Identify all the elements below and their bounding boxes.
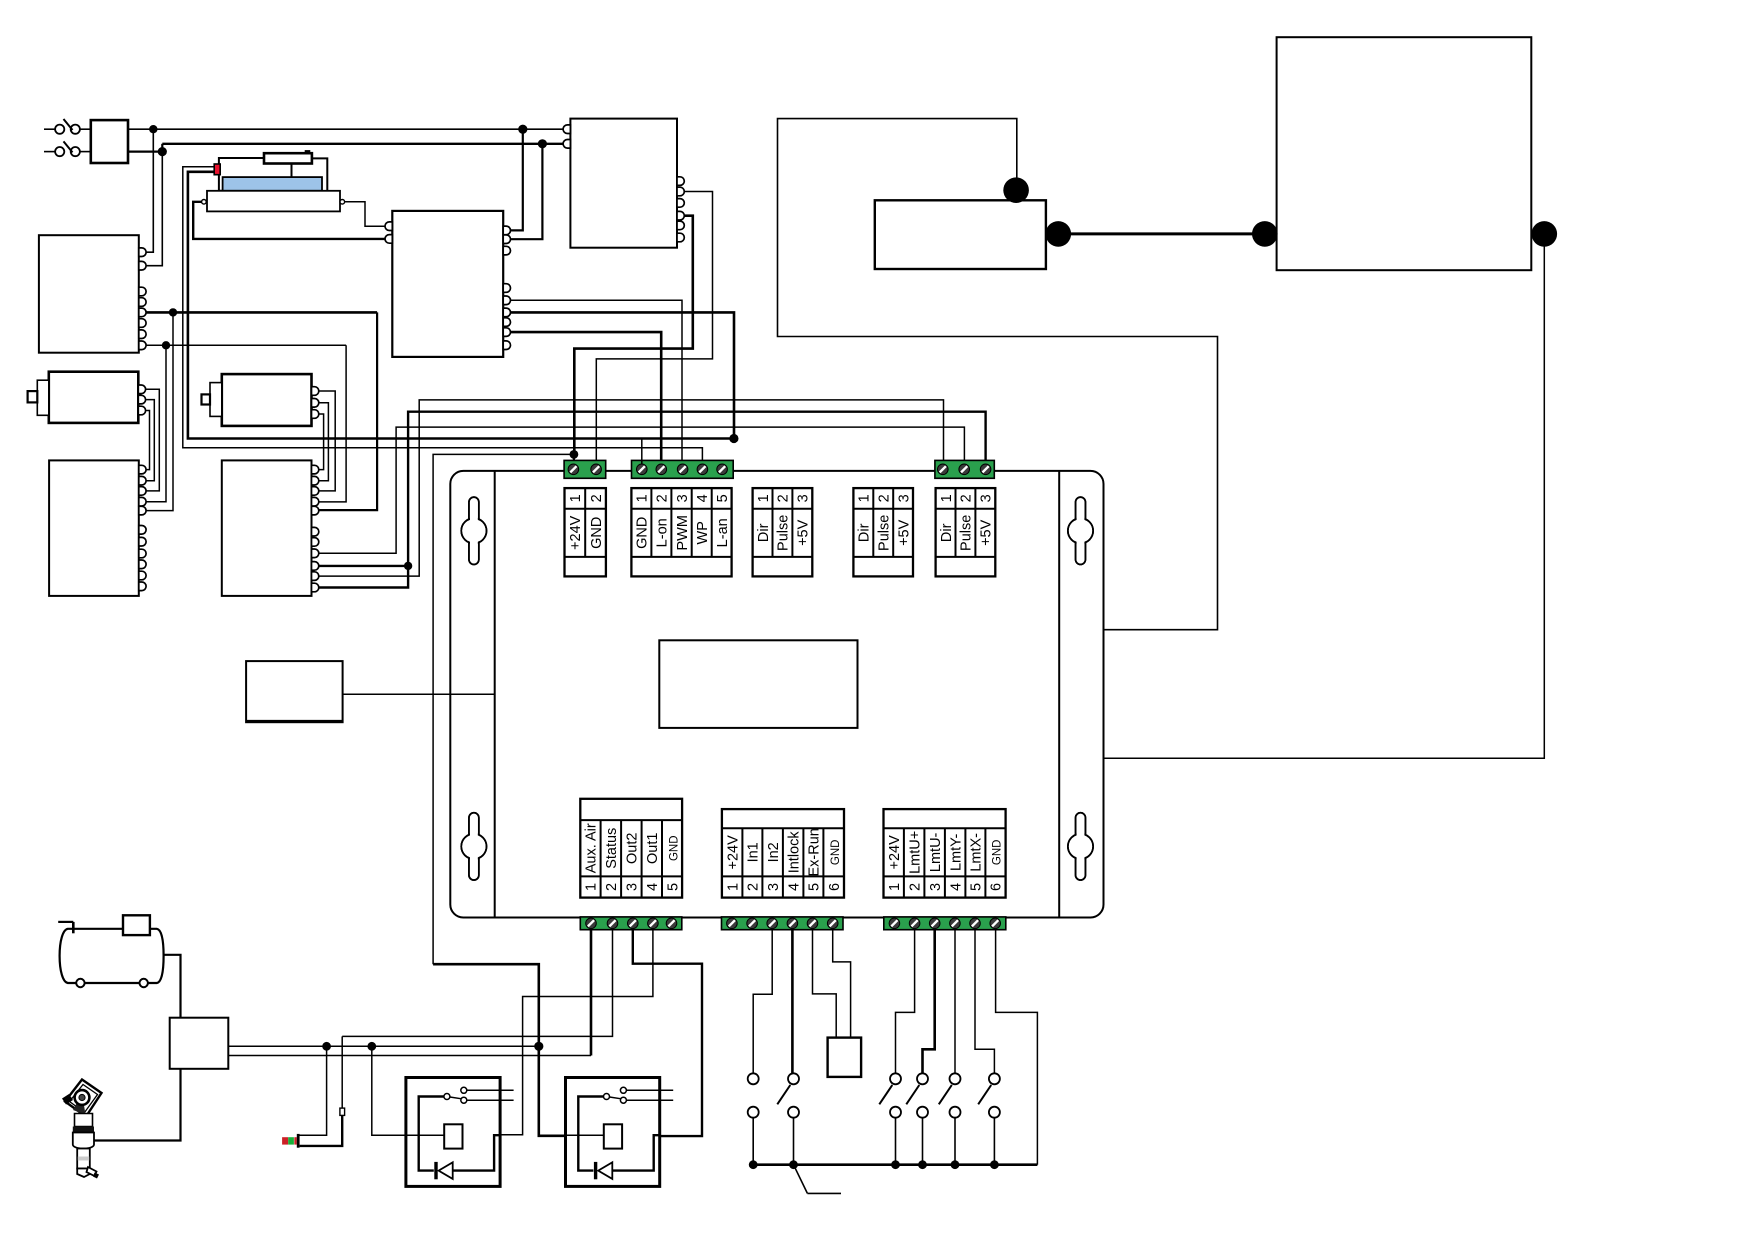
svg-text:3: 3 [675,494,691,502]
svg-text:GND: GND [635,517,651,549]
svg-text:4: 4 [786,883,802,891]
svg-text:GND: GND [668,835,680,861]
svg-text:GND: GND [992,840,1004,866]
svg-text:Dir: Dir [756,523,772,542]
svg-text:Pulse: Pulse [776,515,792,551]
svg-text:4: 4 [695,494,711,502]
svg-text:In1: In1 [746,842,762,862]
svg-text:5: 5 [715,494,731,502]
svg-text:6: 6 [827,883,843,891]
svg-text:2: 2 [589,494,605,502]
svg-text:+5V: +5V [796,519,812,546]
svg-text:6: 6 [989,883,1005,891]
svg-text:2: 2 [907,883,923,891]
svg-text:LmtX-: LmtX- [969,833,985,872]
svg-text:Pulse: Pulse [959,515,975,551]
svg-text:+24V: +24V [568,515,584,550]
svg-text:Pulse: Pulse [876,515,892,551]
svg-text:3: 3 [979,494,995,502]
svg-text:1: 1 [584,883,600,891]
svg-text:1: 1 [725,883,741,891]
svg-text:LmtU+: LmtU+ [907,831,923,874]
svg-text:PWM: PWM [675,515,691,550]
svg-text:WP: WP [695,521,711,544]
svg-text:5: 5 [807,883,823,891]
svg-text:GND: GND [830,840,842,866]
svg-text:L-an: L-an [715,518,731,547]
svg-text:1: 1 [635,494,651,502]
svg-text:Out1: Out1 [645,833,661,864]
svg-text:2: 2 [959,494,975,502]
svg-text:1: 1 [887,883,903,891]
svg-text:LmtY-: LmtY- [948,834,964,872]
svg-text:3: 3 [896,494,912,502]
svg-text:Dir: Dir [939,523,955,542]
svg-text:Aux. Air: Aux. Air [584,823,600,873]
svg-text:4: 4 [948,883,964,891]
svg-text:2: 2 [746,883,762,891]
svg-text:2: 2 [776,494,792,502]
svg-text:1: 1 [756,494,772,502]
svg-text:LmtU-: LmtU- [928,832,944,872]
svg-text:3: 3 [928,883,944,891]
svg-text:Out2: Out2 [625,833,641,864]
svg-text:Dir: Dir [857,523,873,542]
svg-text:3: 3 [796,494,812,502]
svg-text:GND: GND [589,517,605,549]
svg-text:L-on: L-on [655,518,671,547]
svg-text:+5V: +5V [896,519,912,546]
svg-text:Status: Status [604,828,620,869]
svg-text:+24V: +24V [887,835,903,870]
svg-text:2: 2 [876,494,892,502]
svg-text:Intlock: Intlock [786,831,802,874]
svg-text:1: 1 [939,494,955,502]
svg-text:+24V: +24V [725,835,741,870]
svg-text:In2: In2 [766,842,782,862]
svg-text:Ex-Run: Ex-Run [807,828,823,876]
svg-text:5: 5 [665,883,681,891]
svg-text:3: 3 [625,883,641,891]
svg-text:2: 2 [655,494,671,502]
svg-text:2: 2 [604,883,620,891]
svg-text:1: 1 [857,494,873,502]
svg-text:+5V: +5V [979,519,995,546]
svg-text:1: 1 [568,494,584,502]
svg-text:4: 4 [645,883,661,891]
svg-text:3: 3 [766,883,782,891]
svg-text:5: 5 [969,883,985,891]
